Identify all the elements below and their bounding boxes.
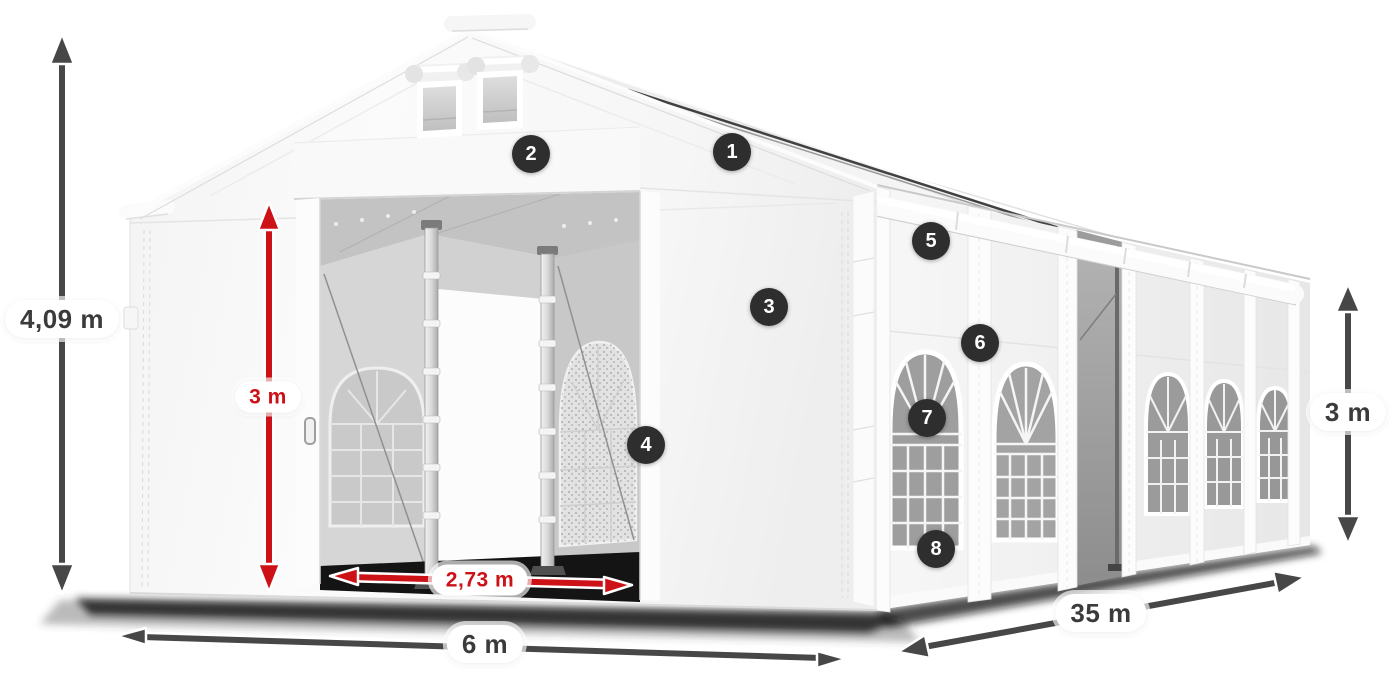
callout-2-gable[interactable]: 2 <box>512 135 550 173</box>
callout-6-side-panel[interactable]: 6 <box>961 324 999 362</box>
callout-3-front-wall[interactable]: 3 <box>750 288 788 326</box>
tent-illustration <box>0 0 1400 700</box>
callout-1-roof[interactable]: 1 <box>713 133 751 171</box>
label-side-length: 35 m <box>1055 594 1146 632</box>
front-entrance-interior <box>320 192 640 602</box>
vent-window <box>477 70 523 130</box>
side-window-far <box>1205 381 1243 507</box>
label-entrance-width: 2,73 m <box>432 565 528 596</box>
inner-door-panel <box>554 240 640 598</box>
side-window <box>994 364 1058 540</box>
inner-door-panel <box>320 234 428 584</box>
callout-7-window[interactable]: 7 <box>908 399 946 437</box>
label-entrance-height: 3 m <box>235 382 301 413</box>
wall-tab <box>124 307 138 329</box>
side-door-opening <box>1076 230 1124 586</box>
label-front-width: 6 m <box>447 625 523 663</box>
callout-5-side-upper[interactable]: 5 <box>912 222 950 260</box>
corner-cover <box>853 191 874 607</box>
vent-window <box>417 80 462 138</box>
label-total-height: 4,09 m <box>5 300 119 338</box>
side-window <box>890 352 961 548</box>
tent-dimension-diagram: 4,09 m 3 m 2,73 m 6 m 35 m 3 m 1 2 3 4 5… <box>0 0 1400 700</box>
label-side-height: 3 m <box>1310 393 1386 431</box>
door-handle <box>305 418 315 444</box>
callout-8-side-lower[interactable]: 8 <box>917 530 955 568</box>
side-window-far <box>1258 388 1292 501</box>
vent-roll <box>405 63 475 83</box>
ridge-cap <box>452 22 528 24</box>
side-window-far <box>1146 374 1190 514</box>
callout-4-entrance[interactable]: 4 <box>627 426 665 464</box>
